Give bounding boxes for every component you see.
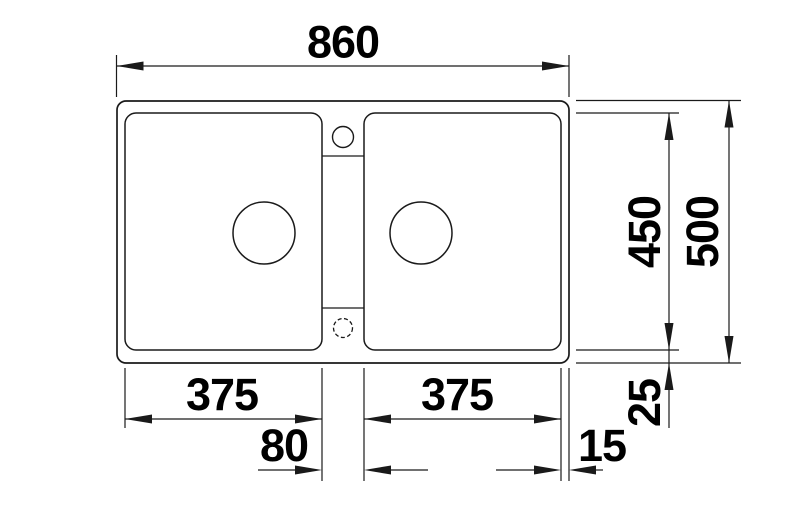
technical-drawing-page: 860 450 500 25 375 375 (0, 0, 800, 505)
arrow-left-icon (364, 466, 391, 475)
left-bowl (125, 113, 322, 350)
dim-bottom-rim: 25 (619, 363, 674, 427)
sink-dimension-drawing: 860 450 500 25 375 375 (0, 0, 800, 505)
arrow-down-icon (725, 336, 734, 363)
arrow-right-icon (534, 415, 561, 424)
tap-hole-icon (333, 127, 354, 148)
dim-15-label: 15 (578, 420, 626, 471)
dim-500-label: 500 (677, 196, 728, 268)
dim-375-left-label: 375 (186, 369, 258, 420)
dim-375-right-label: 375 (421, 369, 493, 420)
arrow-right-icon (542, 62, 569, 71)
arrow-down-icon (665, 323, 674, 350)
dim-divider-width: 80 (258, 420, 428, 475)
arrow-right-icon (534, 466, 561, 475)
sink-outline (117, 101, 569, 363)
arrow-left-icon (125, 415, 152, 424)
right-drain-icon (390, 202, 452, 264)
dim-80-label: 80 (260, 420, 308, 471)
dim-450-label: 450 (619, 196, 670, 268)
right-bowl (364, 113, 561, 350)
left-drain-icon (233, 202, 295, 264)
dim-860-label: 860 (307, 17, 379, 68)
arrow-up-icon (665, 113, 674, 140)
arrow-up-icon (725, 101, 734, 128)
dim-left-bowl-width: 375 (125, 369, 322, 424)
arrow-left-icon (117, 62, 144, 71)
overflow-hole-dashed-icon (334, 319, 353, 338)
arrow-left-icon (364, 415, 391, 424)
dim-overall-width: 860 (117, 17, 570, 98)
dim-right-bowl-width: 375 (364, 369, 561, 424)
dim-25-label: 25 (619, 379, 670, 427)
sink-outer-edge (117, 101, 569, 363)
